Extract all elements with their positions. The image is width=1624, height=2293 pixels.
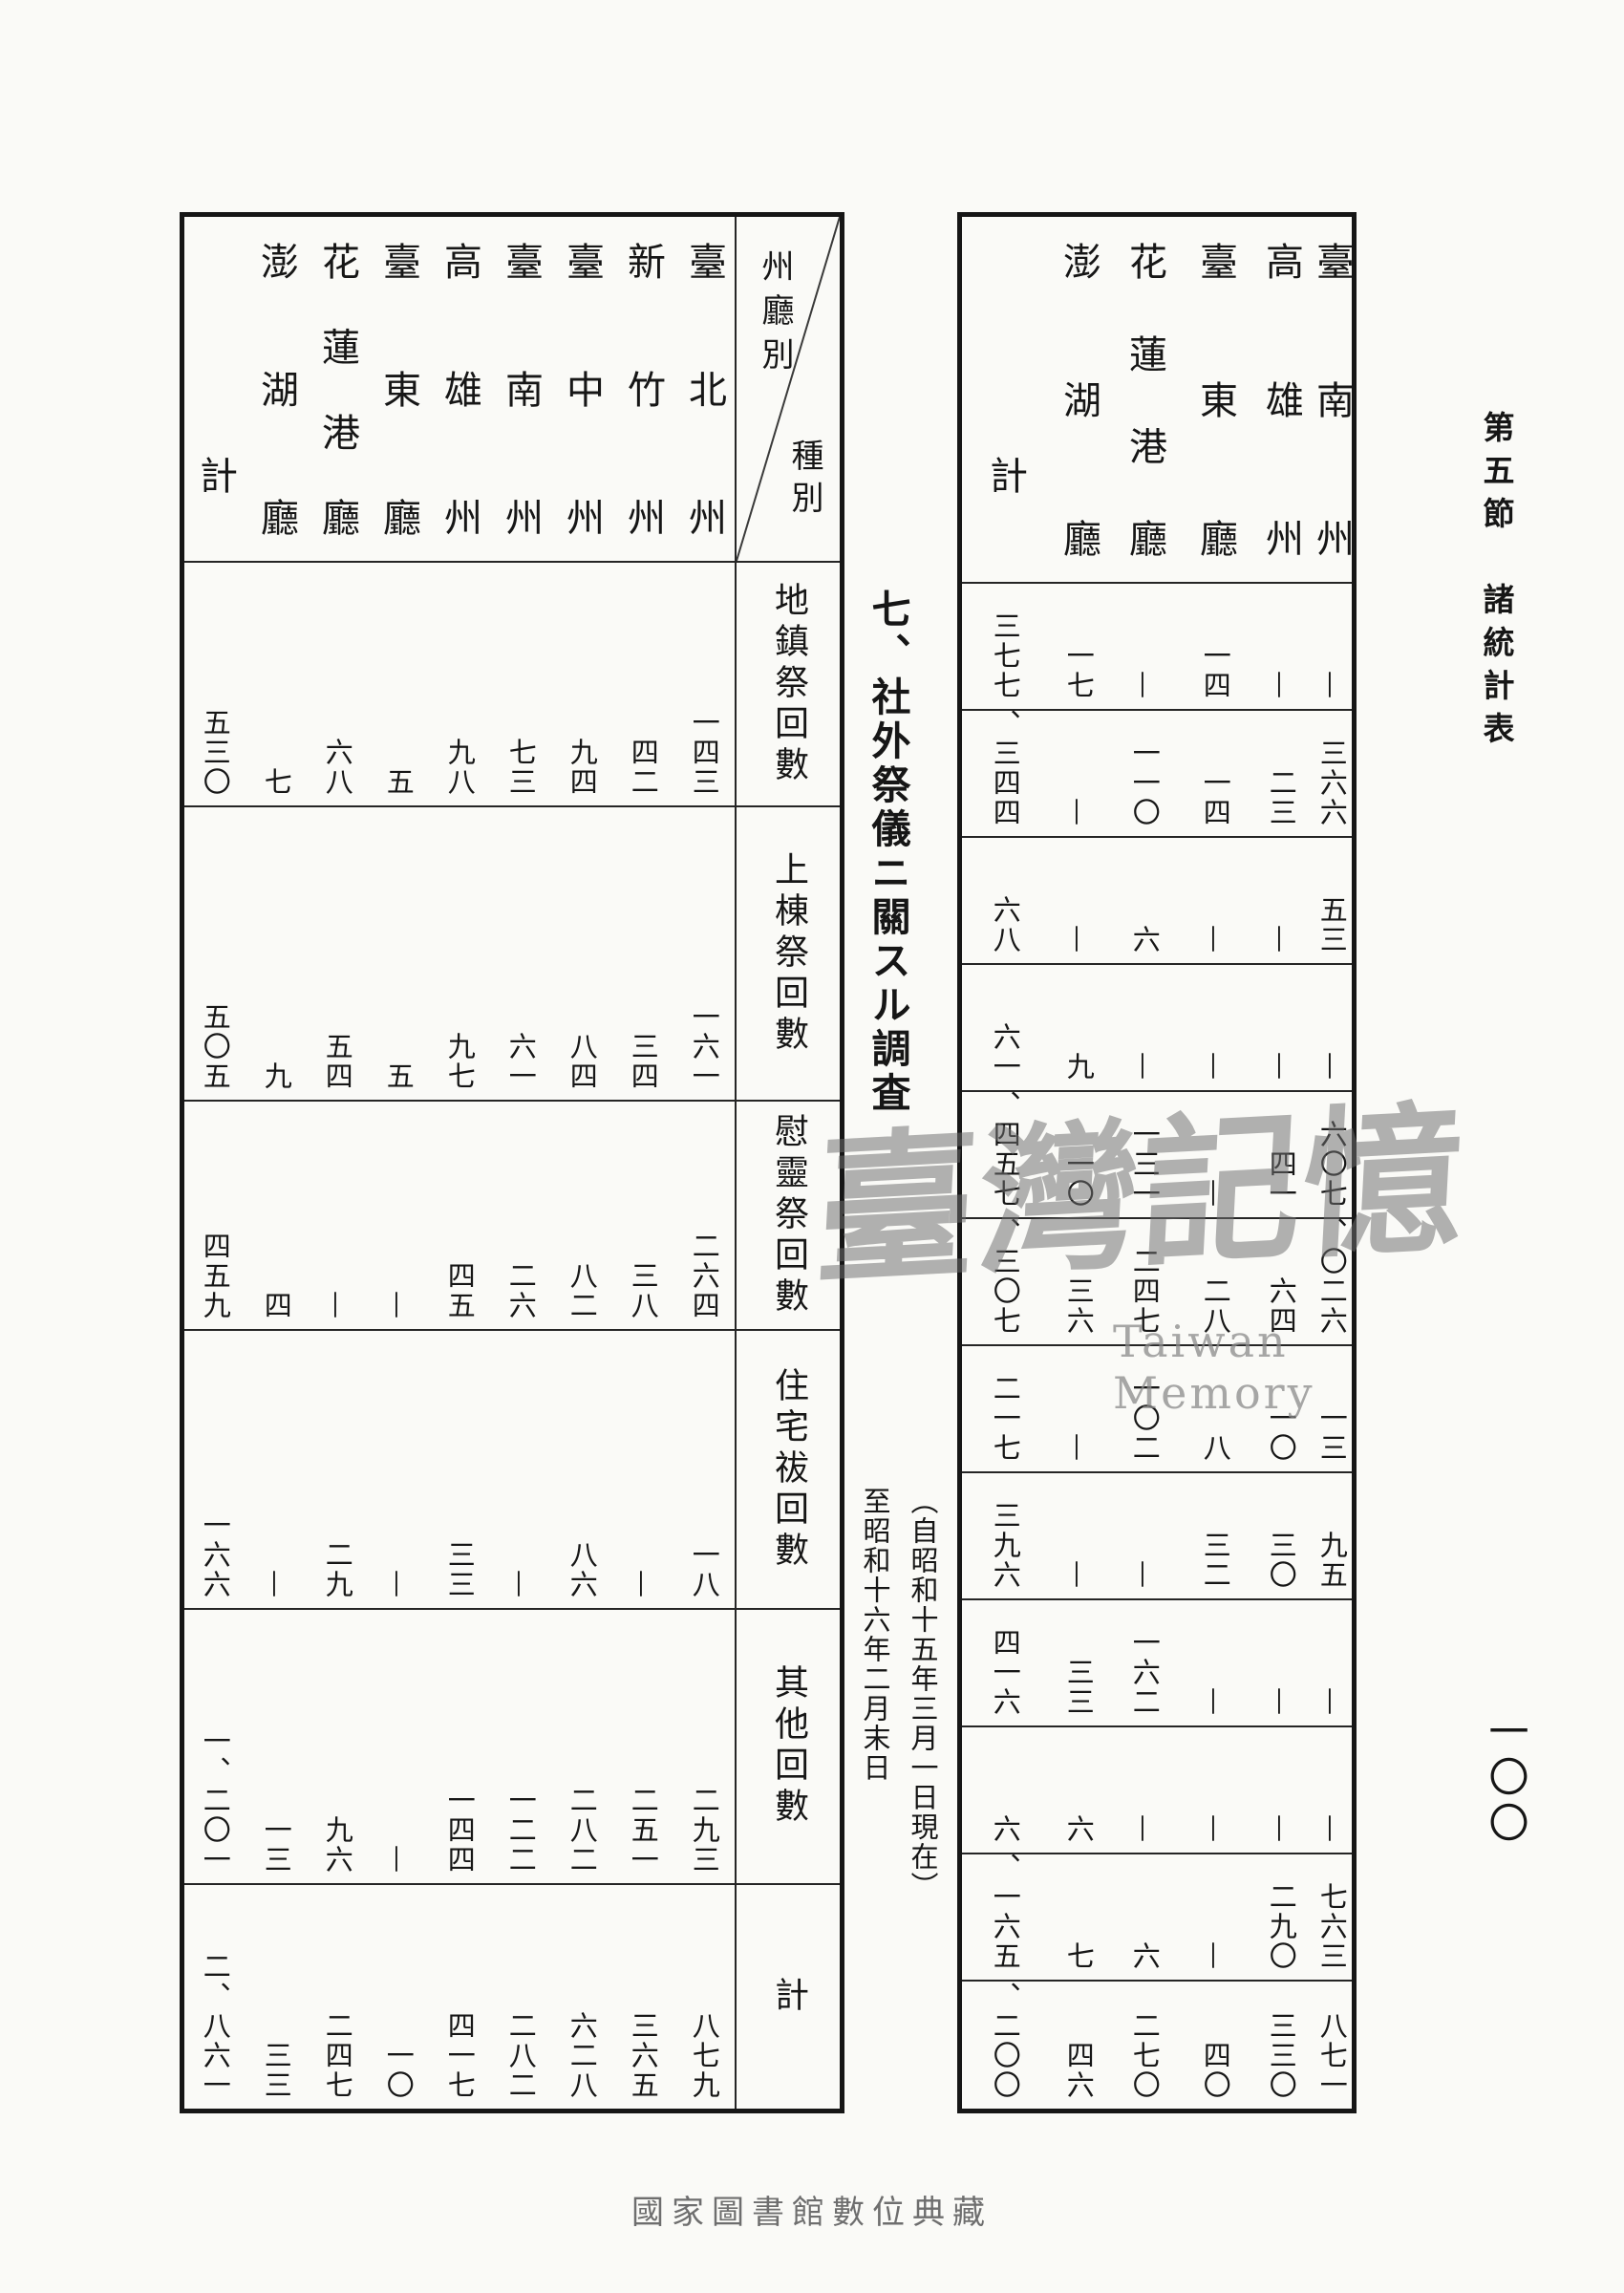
table-cell: — [612,1331,673,1610]
table-cell: 一四四 [429,1610,490,1885]
table-cell: 一三一 [1109,1092,1180,1219]
section-title: 第五節 諸統計表 [1473,411,1519,755]
table-cell: 二九〇 [1250,1854,1312,1982]
table-cell: — [1312,584,1352,711]
table-cell: 七 [246,563,307,807]
table-cell: 二五一 [612,1610,673,1885]
table-cell: 六 [962,1727,1048,1854]
table-cell: — [1180,1600,1250,1727]
table-cell: 二六 [490,1102,551,1331]
table-cell: 八 [1180,1346,1250,1473]
table-cell: 四五 [429,1102,490,1331]
table-cell: 三六五 [612,1885,673,2109]
page-number: 一〇〇 [1477,1710,1535,1848]
table-cell-total: 二七〇 [1109,1982,1180,2109]
table-cell-subtotal: 一、〇二六 [1312,1219,1352,1346]
table-cell: 三、一六五 [962,1854,1048,1982]
table-cell: 二八二 [551,1610,612,1885]
table-cell-total: 四、二〇〇 [962,1982,1048,2109]
table-cell: — [1250,1600,1312,1727]
corner-row-axis-label: 州廳別 [752,249,799,381]
column-header-taito: 臺東廳 [1180,217,1250,584]
table-cell: — [307,1102,368,1331]
table-cell-total: 八七一 [1312,1982,1352,2109]
table-cell: 八七九 [673,1885,735,2109]
table-cell: 三二 [1180,1473,1250,1600]
table-cell: — [1250,965,1312,1092]
table-cell: — [1109,584,1180,711]
table-cell: — [1109,1473,1180,1600]
date-range-note: （自昭和十五年三月一日現在） 至昭和十六年二月末日 [851,1487,947,1901]
table-cell-subtotal: 三、三〇七 [962,1219,1048,1346]
column-header-hoko: 澎湖廳 [246,217,307,563]
table-cell: — [1180,1854,1250,1982]
table-cell: — [490,1331,551,1610]
table-cell: 六 [1109,838,1180,965]
table-cell-total: 四〇 [1180,1982,1250,2109]
table-cell: 一四三 [673,563,735,807]
table-cell: 一二二 [490,1610,551,1885]
table-cell: 四五九 [184,1102,246,1331]
table-cell: 一〇 [1048,1092,1109,1219]
table-cell-total: 四六 [1048,1982,1109,2109]
table-cell: 三〇 [1250,1473,1312,1600]
table-cell: 一〇 [1250,1346,1312,1473]
table-cell: 六〇七 [1312,1092,1352,1219]
column-header-hoko: 澎湖廳 [1048,217,1109,584]
table-cell: 一四 [1180,711,1250,838]
table-cell: — [1180,838,1250,965]
table-cell: 一〇 [368,1885,429,2109]
column-header-takao: 高雄州 [429,217,490,563]
column-header-taihoku: 臺北州 [673,217,735,563]
table-cell: — [246,1331,307,1610]
column-header-takao: 高雄州 [1250,217,1312,584]
table-cell: 三七七 [962,584,1048,711]
table-cell: — [1048,838,1109,965]
table-cell: 九五 [1312,1473,1352,1600]
table-cell: 八二 [551,1102,612,1331]
row-label: 地鎮祭回數 [735,563,840,807]
table-cell: 三四 [612,807,673,1102]
scanned-page: { "page": { "section_title": "第五節 諸統計表",… [0,0,1624,2293]
table-cell: 九 [1048,965,1109,1092]
table-cell: — [1250,838,1312,965]
continued-statistics-table: 計 澎湖廳 花蓮港廳 臺東廳 高雄州 臺南州 三七七 一七 — 一四 — — 一… [957,212,1357,2113]
table-cell: 二九三 [673,1610,735,1885]
table-cell: 一、四五七 [962,1092,1048,1219]
column-header-tainan: 臺南州 [1312,217,1352,584]
table-cell: 一三 [246,1610,307,1885]
table-cell: 二九 [307,1331,368,1610]
table-cell: 四一七 [429,1885,490,2109]
table-cell: 一七 [1048,584,1109,711]
table-cell: — [1180,1727,1250,1854]
table-cell: — [1109,965,1180,1092]
table-cell: 三三 [1048,1600,1109,1727]
table-cell: — [368,1102,429,1331]
table-cell: 六一 [490,807,551,1102]
table-cell: 五 [368,563,429,807]
table-cell: 二三 [1250,711,1312,838]
table-cell: 三三 [429,1331,490,1610]
table-cell: 六 [1048,1727,1109,1854]
column-header-karenko: 花蓮港廳 [307,217,368,563]
table-cell: — [1048,1346,1109,1473]
row-label: 其他回數 [735,1610,840,1885]
table-cell: 八四 [551,807,612,1102]
table-cell: — [1250,584,1312,711]
table-cell: 四一 [1250,1092,1312,1219]
table-cell: 二四七 [307,1885,368,2109]
row-label-total: 計 [735,1885,840,2109]
table-cell: 九七 [429,807,490,1102]
table-cell: 二、八六一 [184,1885,246,2109]
table-title: 七、社外祭儀ニ關スル調査 [859,589,916,1116]
table-cell: 一〇二 [1109,1346,1180,1473]
table-cell: 六八 [962,838,1048,965]
table-cell: 八六 [551,1331,612,1610]
table-cell: 一六二 [1109,1600,1180,1727]
table-cell: 三三 [246,1885,307,2109]
table-cell: 三九六 [962,1473,1048,1600]
table-cell: 四二 [612,563,673,807]
table-cell: 六 [1109,1854,1180,1982]
table-cell: — [1312,1600,1352,1727]
table-corner-cell: 州廳別 種別 [735,217,840,563]
table-cell: 二八二 [490,1885,551,2109]
table-cell: 九四 [551,563,612,807]
table-cell: 九八 [429,563,490,807]
column-header-taito: 臺東廳 [368,217,429,563]
table-cell: 一、三四四 [962,711,1048,838]
table-cell: 四一六 [962,1600,1048,1727]
table-cell: 五四 [307,807,368,1102]
table-cell: — [368,1610,429,1885]
table-cell: 一六一 [673,807,735,1102]
corner-col-axis-label: 種別 [781,439,828,523]
table-cell: 一、二〇一 [184,1610,246,1885]
table-cell: 一四 [1180,584,1250,711]
table-cell: 七三 [490,563,551,807]
table-cell: 九 [246,807,307,1102]
column-header-taichu: 臺中州 [551,217,612,563]
table-cell: 二六四 [673,1102,735,1331]
table-cell: 三六六 [1312,711,1352,838]
table-cell: 四 [246,1102,307,1331]
table-cell: 七 [1048,1854,1109,1982]
column-header-tainan: 臺南州 [490,217,551,563]
table-cell: — [1048,1473,1109,1600]
table-cell: 五 [368,807,429,1102]
table-cell: — [368,1331,429,1610]
table-cell: 二一七 [962,1346,1048,1473]
table-cell-subtotal: 三六 [1048,1219,1109,1346]
row-label: 住宅祓回數 [735,1331,840,1610]
table-cell: — [1180,1092,1250,1219]
ceremonies-by-prefecture-table: 計 澎湖廳 花蓮港廳 臺東廳 高雄州 臺南州 臺中州 新竹州 臺北州 州廳別 種… [180,212,844,2113]
table-cell: — [1180,965,1250,1092]
table-cell-total: 三三〇 [1250,1982,1312,2109]
table-cell: 一一〇 [1109,711,1180,838]
column-header-karenko: 花蓮港廳 [1109,217,1180,584]
archive-caption: 國家圖書館數位典藏 [516,2186,1108,2233]
table-cell-subtotal: 二八 [1180,1219,1250,1346]
column-header-shinchiku: 新竹州 [612,217,673,563]
row-label: 上棟祭回數 [735,807,840,1102]
table-cell: 一六六 [184,1331,246,1610]
table-cell: 一八 [673,1331,735,1610]
table-cell: 五三〇 [184,563,246,807]
table-cell: 五〇五 [184,807,246,1102]
table-cell-subtotal: 二四七 [1109,1219,1180,1346]
table-cell-subtotal: 六四 [1250,1219,1312,1346]
table-cell: 一三 [1312,1346,1352,1473]
table-cell: — [1048,711,1109,838]
column-header-total: 計 [184,217,246,563]
row-label: 慰靈祭回數 [735,1102,840,1331]
table-cell: 三八 [612,1102,673,1331]
table-cell: — [1250,1727,1312,1854]
column-header-total: 計 [962,217,1048,584]
table-cell: 九六 [307,1610,368,1885]
table-cell: — [1312,965,1352,1092]
table-cell: 五三 [1312,838,1352,965]
table-cell: 七六三 [1312,1854,1352,1982]
table-cell: 六二八 [551,1885,612,2109]
table-cell: — [1312,1727,1352,1854]
table-cell: — [1109,1727,1180,1854]
table-cell: 六一 [962,965,1048,1092]
table-cell: 六八 [307,563,368,807]
